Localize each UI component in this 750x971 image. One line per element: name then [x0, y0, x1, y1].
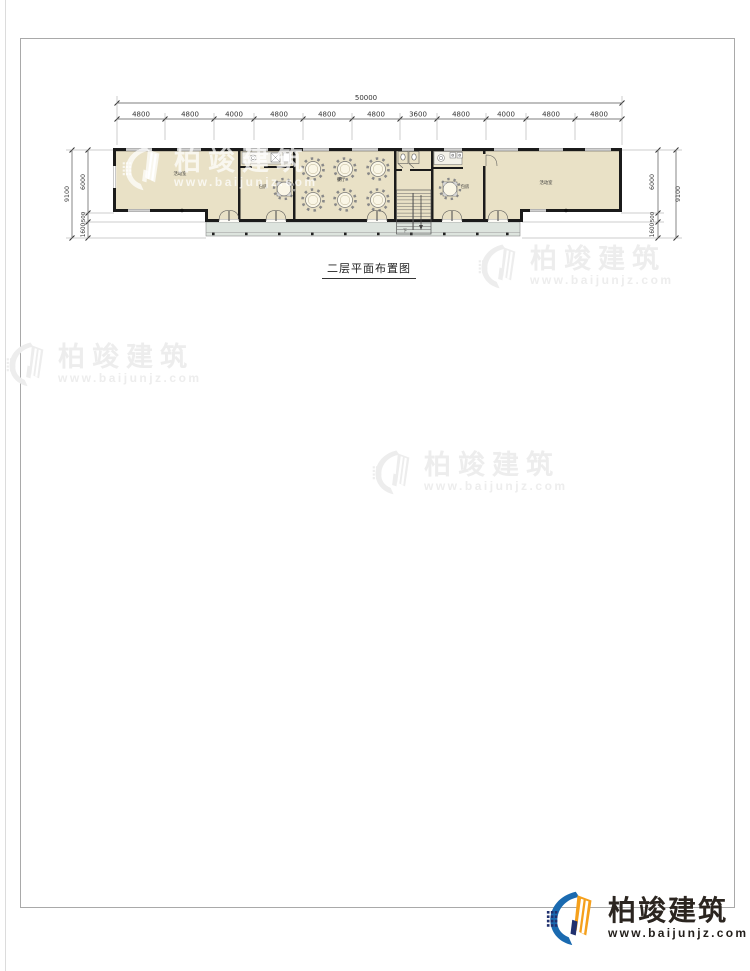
dimension-top-labels: 50000 4800 4800 4000 4800 4800 4800 3600… [132, 94, 608, 119]
wash-counter [434, 152, 463, 165]
brand-logo-icon [122, 142, 168, 194]
room-label-right-private: 包房 [461, 183, 470, 190]
watermark-url: www.baijunjz.com [174, 175, 318, 189]
watermark-text: 柏竣建筑 www.baijunjz.com [174, 147, 318, 190]
dim-seg: 3600 [409, 111, 427, 119]
dim-seg: 6000 [649, 174, 656, 190]
dim-seg: 500 [81, 211, 87, 222]
dimension-left-labels: 9100 6000 500 1600 [64, 174, 87, 237]
brand-logo-icon [546, 886, 602, 950]
dim-seg: 4800 [132, 111, 150, 119]
footer-brand-url: www.baijunjz.com [608, 926, 748, 940]
dim-seg: 500 [650, 211, 656, 222]
drawing-sheet: 50000 4800 4800 4000 4800 4800 4800 3600… [0, 0, 750, 971]
footer-logo: 柏竣建筑 www.baijunjz.com [546, 886, 748, 950]
stair-direction-label: 下 [403, 228, 407, 233]
dim-seg: 4000 [497, 111, 515, 119]
dimension-right-labels: 9100 6000 500 1600 [649, 174, 682, 237]
dim-seg: 4800 [367, 111, 385, 119]
dim-seg: 4000 [225, 111, 243, 119]
dim-seg: 6000 [80, 174, 87, 190]
room-label-dining: 餐厅 [337, 176, 346, 183]
footer-logo-text: 柏竣建筑 www.baijunjz.com [608, 896, 748, 940]
dim-seg: 4800 [181, 111, 199, 119]
porch [206, 222, 520, 236]
dim-seg: 4800 [270, 111, 288, 119]
dim-total-right: 9100 [675, 186, 682, 202]
watermark-brand: 柏竣建筑 [174, 147, 318, 175]
dim-seg: 4800 [542, 111, 560, 119]
dim-total-top: 50000 [355, 94, 377, 102]
watermark: 柏竣建筑 www.baijunjz.com [122, 142, 318, 194]
dim-seg: 1600 [650, 222, 656, 237]
dim-seg: 4800 [590, 111, 608, 119]
dimension-top [115, 96, 625, 145]
dim-seg: 4800 [452, 111, 470, 119]
plan-title: 二层平面布置图 [322, 260, 416, 279]
floor-plan: 50000 4800 4800 4000 4800 4800 4800 3600… [0, 0, 750, 971]
private-table-right [440, 179, 460, 199]
room-label-right-hall: 活动室 [540, 179, 554, 186]
dim-seg: 4800 [318, 111, 336, 119]
dim-seg: 1600 [81, 222, 87, 237]
dim-total-left: 9100 [64, 186, 71, 202]
footer-brand-name: 柏竣建筑 [608, 896, 748, 925]
